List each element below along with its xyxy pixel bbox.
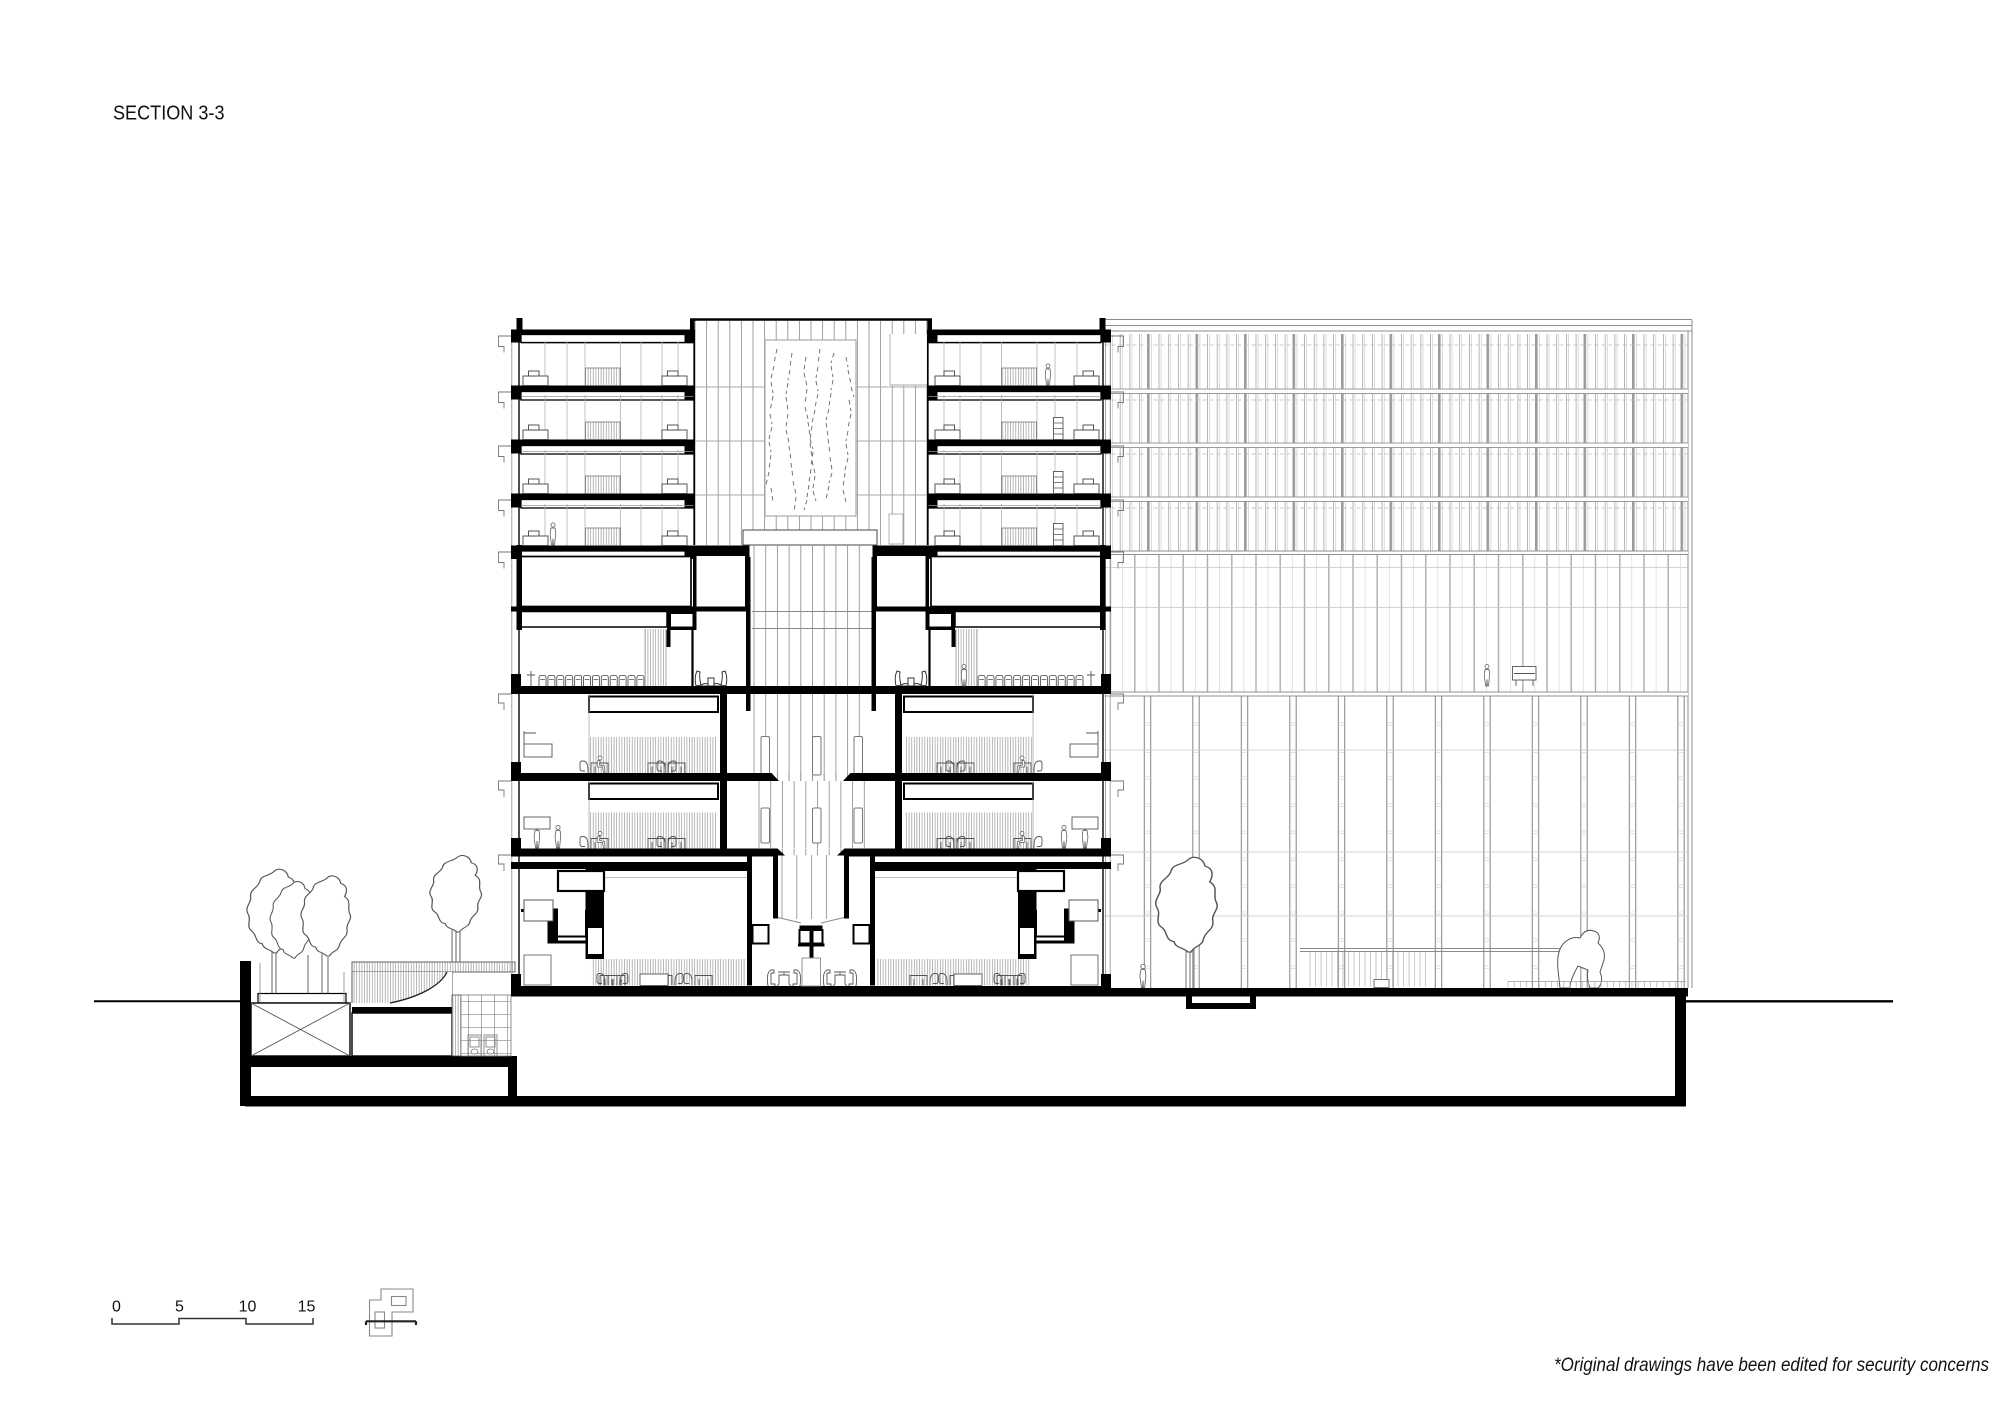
svg-text:15: 15 <box>298 1299 316 1316</box>
svg-text:10: 10 <box>239 1299 257 1316</box>
svg-text:SECTION 3-3: SECTION 3-3 <box>113 102 225 125</box>
svg-text:0: 0 <box>112 1299 121 1316</box>
svg-text:5: 5 <box>175 1299 184 1316</box>
svg-text:*Original drawings have been e: *Original drawings have been edited for … <box>1554 1355 1989 1376</box>
